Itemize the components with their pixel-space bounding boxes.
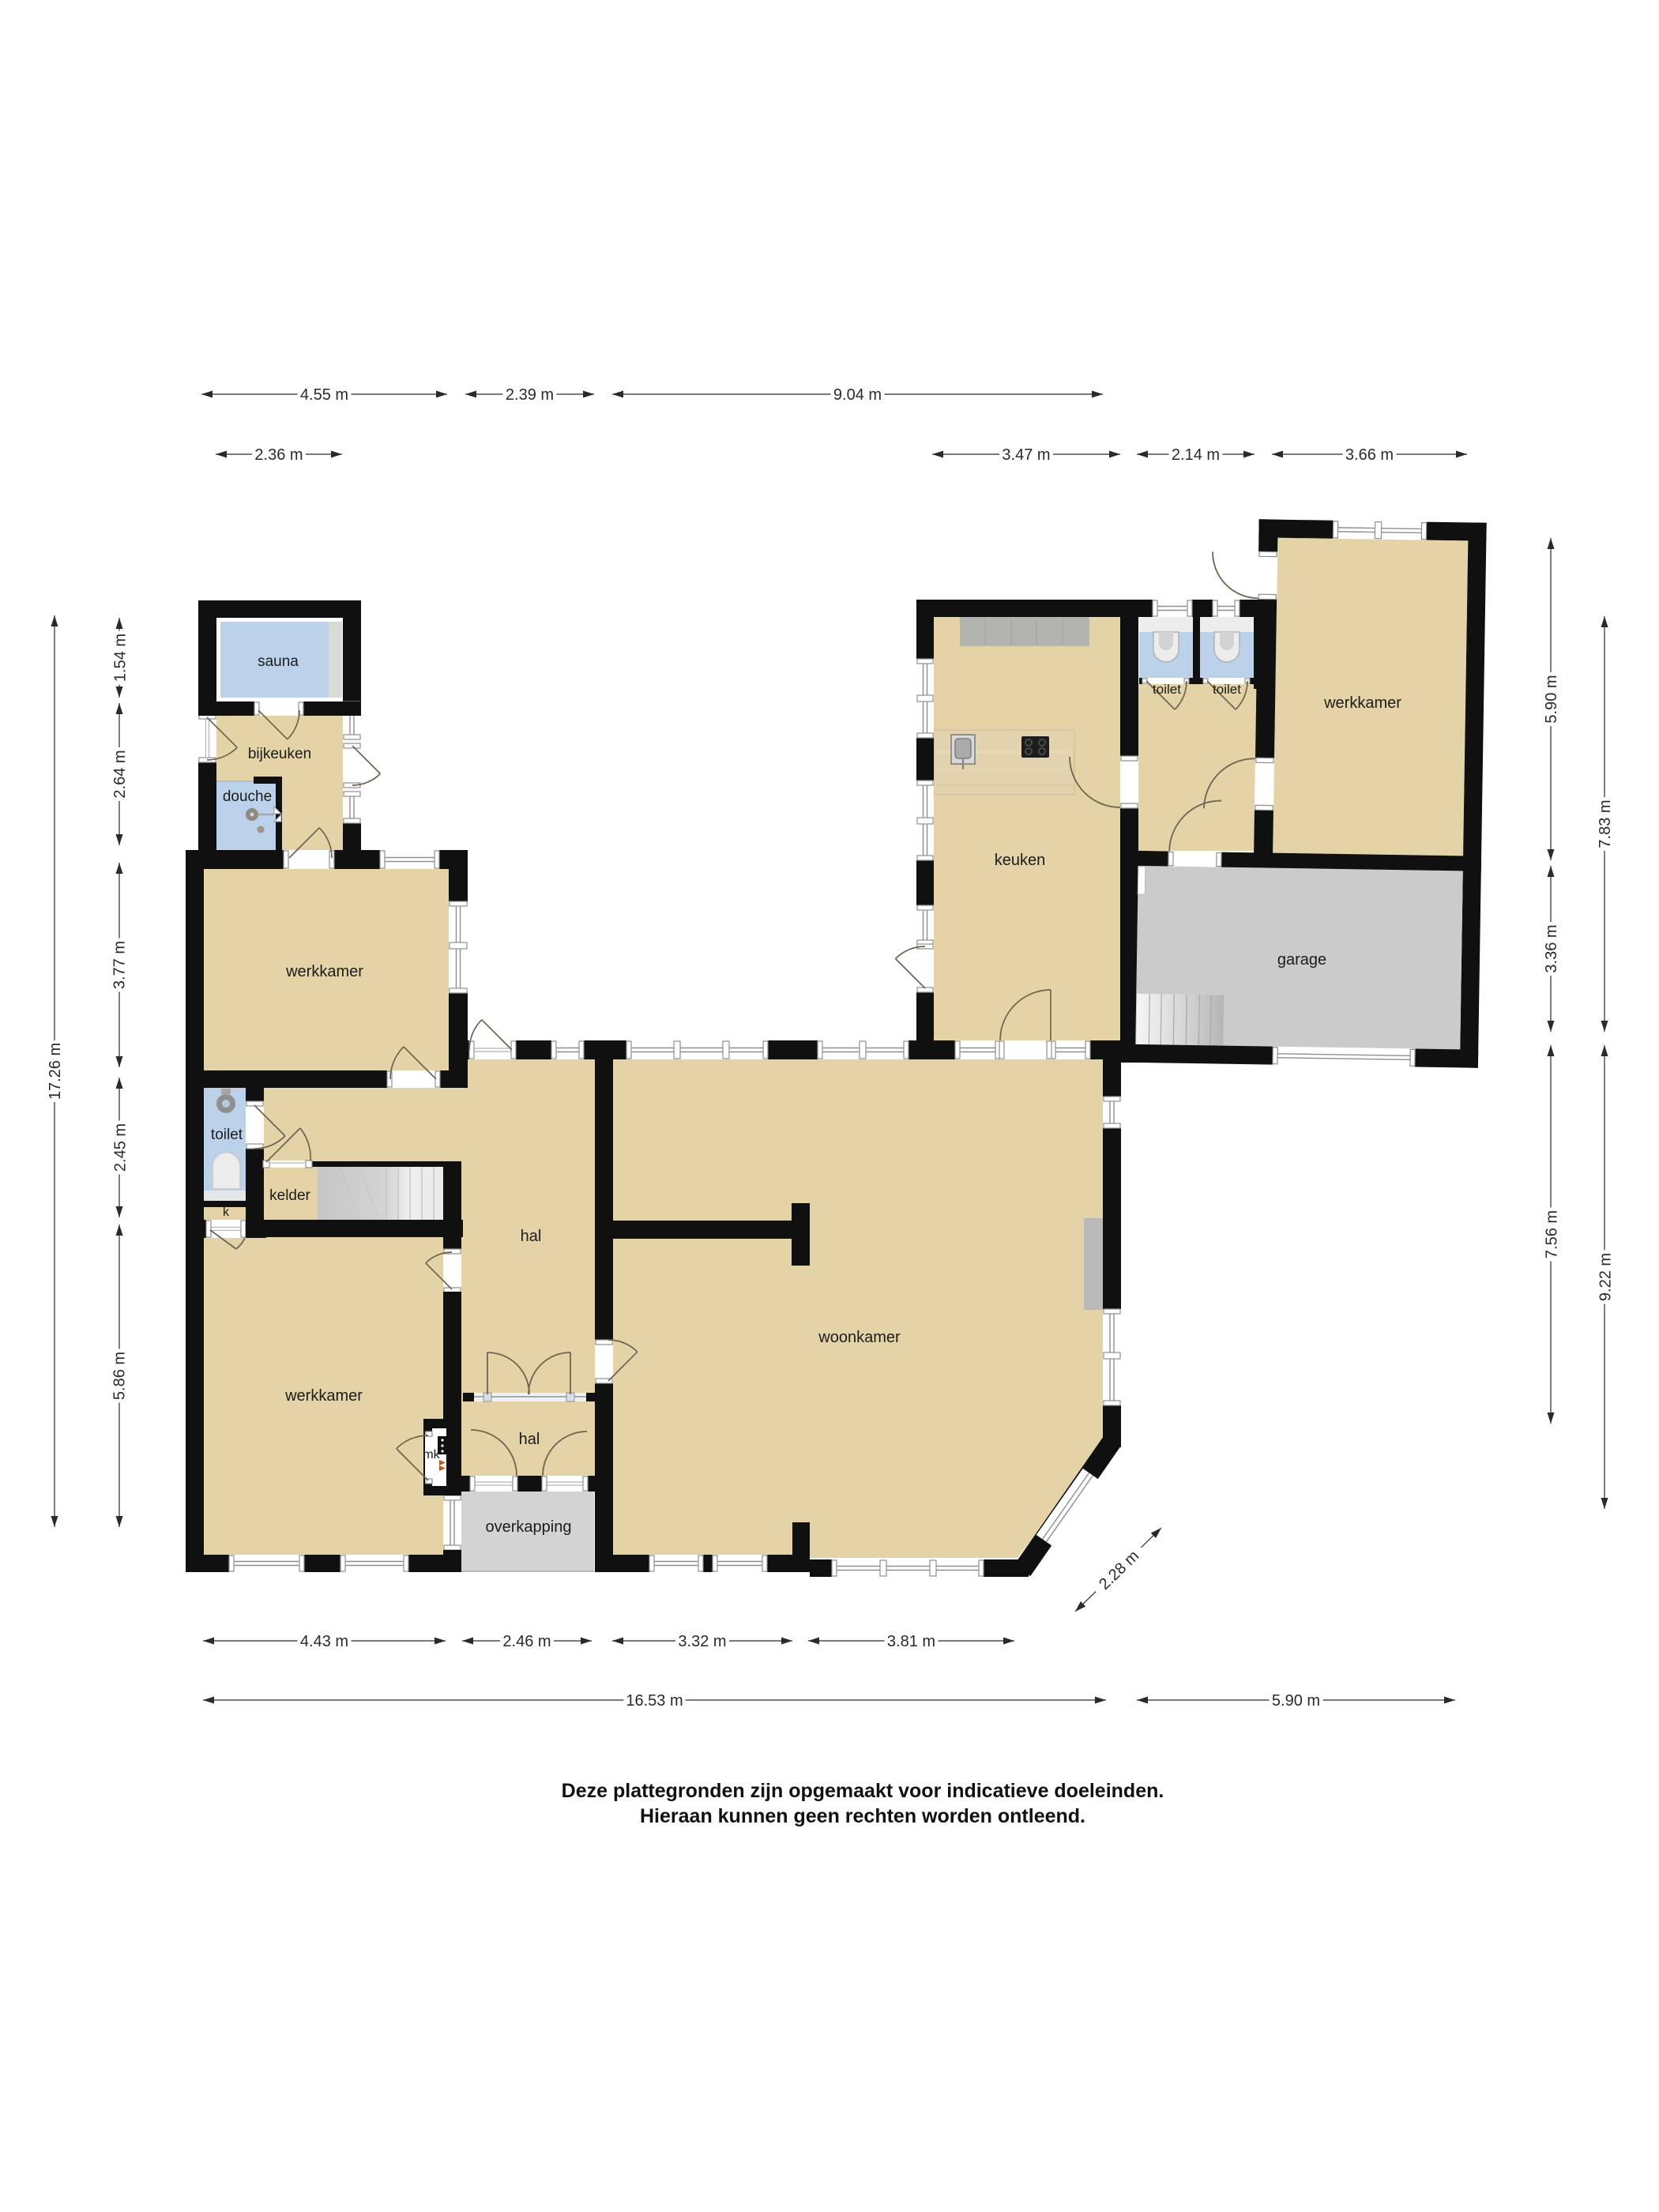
- svg-text:toilet: toilet: [1213, 682, 1241, 697]
- svg-text:2.36 m: 2.36 m: [254, 446, 303, 464]
- svg-text:keuken: keuken: [995, 852, 1046, 869]
- svg-text:3.36 m: 3.36 m: [1543, 924, 1560, 972]
- svg-text:16.53 m: 16.53 m: [626, 1692, 683, 1710]
- svg-text:9.22 m: 9.22 m: [1597, 1253, 1615, 1301]
- svg-text:3.81 m: 3.81 m: [887, 1633, 935, 1650]
- svg-text:2.14 m: 2.14 m: [1172, 446, 1220, 464]
- svg-text:toilet: toilet: [1153, 682, 1181, 697]
- svg-text:3.77 m: 3.77 m: [111, 941, 129, 989]
- svg-text:2.39 m: 2.39 m: [506, 386, 554, 404]
- svg-text:kelder: kelder: [269, 1187, 310, 1204]
- svg-text:7.56 m: 7.56 m: [1544, 1210, 1561, 1258]
- svg-text:3.32 m: 3.32 m: [678, 1633, 726, 1650]
- svg-text:1.54 m: 1.54 m: [112, 634, 130, 682]
- svg-text:sauna: sauna: [258, 653, 299, 670]
- svg-text:toilet: toilet: [211, 1127, 243, 1143]
- svg-text:7.83 m: 7.83 m: [1597, 799, 1614, 848]
- svg-text:hal: hal: [521, 1228, 542, 1245]
- svg-text:douche: douche: [223, 788, 272, 805]
- svg-text:5.86 m: 5.86 m: [111, 1352, 129, 1400]
- svg-text:9.04 m: 9.04 m: [833, 386, 882, 404]
- svg-text:3.47 m: 3.47 m: [1002, 446, 1050, 464]
- svg-text:k: k: [223, 1206, 230, 1219]
- svg-text:5.90 m: 5.90 m: [1543, 675, 1560, 723]
- svg-text:2.64 m: 2.64 m: [111, 750, 129, 798]
- svg-text:mk: mk: [423, 1448, 440, 1461]
- svg-text:werkkamer: werkkamer: [1323, 694, 1401, 712]
- svg-text:Deze plattegronden zijn opgema: Deze plattegronden zijn opgemaakt voor i…: [562, 1780, 1164, 1802]
- svg-text:hal: hal: [519, 1431, 540, 1448]
- svg-text:woonkamer: woonkamer: [818, 1329, 901, 1346]
- svg-text:4.55 m: 4.55 m: [300, 386, 348, 404]
- svg-text:bijkeuken: bijkeuken: [248, 746, 311, 762]
- svg-text:Hieraan kunnen geen rechten wo: Hieraan kunnen geen rechten worden ontle…: [640, 1805, 1085, 1827]
- svg-text:2.46 m: 2.46 m: [502, 1633, 551, 1650]
- svg-text:5.90 m: 5.90 m: [1272, 1692, 1320, 1710]
- svg-text:overkapping: overkapping: [486, 1518, 572, 1536]
- svg-text:2.45 m: 2.45 m: [112, 1123, 130, 1172]
- svg-text:4.43 m: 4.43 m: [300, 1633, 348, 1650]
- svg-text:werkkamer: werkkamer: [285, 963, 363, 980]
- svg-text:3.66 m: 3.66 m: [1345, 446, 1394, 464]
- svg-text:werkkamer: werkkamer: [284, 1387, 363, 1405]
- svg-text:17.26 m: 17.26 m: [47, 1043, 64, 1100]
- svg-text:garage: garage: [1277, 951, 1326, 969]
